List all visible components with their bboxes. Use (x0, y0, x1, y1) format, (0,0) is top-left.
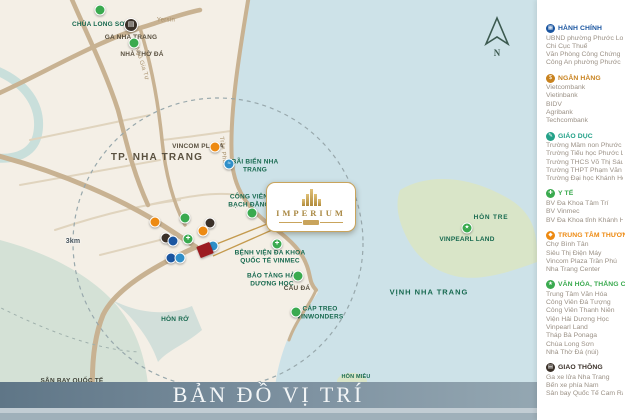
legend-item: Trường Đại học Khánh Hòa (546, 175, 623, 183)
poi-marker-culture (180, 213, 191, 224)
legend-item: Ga xe lửa Nha Trang (546, 374, 623, 382)
legend-category-title: HÀNH CHÍNH (558, 25, 602, 32)
park-marker-icon (247, 208, 258, 219)
legend-item: BV Đa Khoa Tâm Trí (546, 200, 623, 208)
legend-item: Trường THPT Phạm Văn Đồng (546, 167, 623, 175)
legend-item: Techcombank (546, 117, 623, 125)
poi-marker-shopping (150, 217, 161, 228)
hospital-vinmec-icon: ✚ (272, 239, 283, 250)
legend-item: Sân bay Quốc Tế Cam Ranh (546, 390, 623, 398)
map-label-chua-long-son: CHÙA LONG SƠN (72, 21, 130, 29)
legend-item: Vinpearl Land (546, 324, 623, 332)
poi-marker-shopping (198, 226, 209, 237)
logo-ornament (279, 220, 343, 225)
map-canvas: N CHÙA LONG SƠN GA NHA TRANG NHÀ THỜ ĐÁ … (0, 0, 537, 420)
legend-category-title: GIÁO DỤC (558, 133, 593, 140)
legend-category-hanh-chinh: ▦ HÀNH CHÍNH UBND phường Phước Long Chi … (546, 24, 623, 68)
legend-item: Văn Phòng Công Chứng (546, 51, 623, 59)
legend-category-van-hoa-thang-canh: ★ VĂN HÓA, THẮNG CẢNH Trung Tâm Văn Hóa … (546, 280, 623, 357)
poi-marker-bank (168, 236, 179, 247)
train-station-icon: ▤ (124, 18, 138, 32)
legend-category-title: Y TẾ (558, 190, 573, 197)
legend-item: Tháp Bà Ponaga (546, 332, 623, 340)
bank-dollar-icon: $ (546, 74, 555, 83)
legend-category-title: GIAO THÔNG (558, 364, 603, 371)
cable-car-marker-icon (291, 307, 302, 318)
transport-train-icon: ▤ (546, 363, 555, 372)
legend-item: Viện Hải Dương Học (546, 316, 623, 324)
map-label-hon-mieu: HÒN MIỄU (341, 374, 370, 380)
location-map-page: N CHÙA LONG SƠN GA NHA TRANG NHÀ THỜ ĐÁ … (0, 0, 625, 420)
legend-category-title: NGÂN HÀNG (558, 75, 601, 82)
legend-item: Vietcombank (546, 84, 623, 92)
legend-category-y-te: ✚ Y TẾ BV Đa Khoa Tâm Trí BV Vinmec BV Đ… (546, 189, 623, 224)
legend-item: BV Đa Khoa tỉnh Khánh Hòa (546, 217, 623, 225)
legend-item: Chi Cục Thuế (546, 43, 623, 51)
legend-item: UBND phường Phước Long (546, 35, 623, 43)
map-label-cau-da: CẦU ĐÁ (284, 285, 310, 293)
map-label-cap-treo-vinwonders: CÁP TREO VINWONDERS (295, 305, 345, 320)
compass: N (484, 14, 510, 58)
page-title: BẢN ĐỒ VỊ TRÍ (173, 382, 365, 408)
map-label-hon-ro: HÒN RỚ (161, 316, 189, 324)
legend-item: Công Viên Đá Tượng (546, 299, 623, 307)
scale-label-3km: 3km (66, 238, 81, 246)
legend-sidebar: ▦ HÀNH CHÍNH UBND phường Phước Long Chi … (537, 0, 625, 420)
legend-item: Nha Trang Center (546, 266, 623, 274)
map-label-vinh-nha-trang: VỊNH NHA TRANG (390, 289, 469, 298)
street-label-yersin: Yersin (157, 17, 175, 24)
legend-item: Vietinbank (546, 92, 623, 100)
skyline-bars-icon (302, 189, 321, 206)
compass-north-label: N (484, 48, 510, 58)
legend-item: Chùa Long Sơn (546, 341, 623, 349)
map-label-bai-bien-nha-trang: BÃI BIỂN NHA TRANG (229, 158, 281, 173)
legend-category-trung-tam-thuong-mai: ◆ TRUNG TÂM THƯƠNG MẠI Chợ Bình Tân Siêu… (546, 231, 623, 275)
legend-item: Chợ Bình Tân (546, 241, 623, 249)
museum-marker-icon (293, 271, 304, 282)
legend-category-title: VĂN HÓA, THẮNG CẢNH (558, 281, 625, 288)
legend-item: BV Vinmec (546, 208, 623, 216)
legend-item: Trung Tâm Văn Hóa (546, 291, 623, 299)
education-icon: ✎ (546, 132, 555, 141)
legend-item: BIDV (546, 101, 623, 109)
legend-item: Agribank (546, 109, 623, 117)
map-label-hon-tre: HÒN TRE (474, 214, 509, 222)
poi-marker-medical: ✚ (183, 234, 194, 245)
legend-item: Công Viên Thanh Niên (546, 307, 623, 315)
legend-item: Bến xe phía Nam (546, 382, 623, 390)
pagoda-marker-icon (95, 5, 106, 16)
map-label-tp-nha-trang: TP. NHA TRANG (111, 152, 203, 164)
project-logo-card: IMPERIUM (266, 182, 356, 232)
project-name: IMPERIUM (276, 208, 346, 218)
title-bar-strip (0, 413, 537, 420)
government-building-icon: ▦ (546, 24, 555, 33)
poi-marker-education (175, 253, 186, 264)
legend-item: Siêu Thị Điện Máy (546, 250, 623, 258)
legend-category-ngan-hang: $ NGÂN HÀNG Vietcombank Vietinbank BIDV … (546, 74, 623, 126)
cathedral-marker-icon (129, 38, 140, 49)
legend-item: Nhà Thờ Đá (núi) (546, 349, 623, 357)
medical-cross-icon: ✚ (546, 189, 555, 198)
legend-category-giao-thong: ▤ GIAO THÔNG Ga xe lửa Nha Trang Bến xe … (546, 363, 623, 398)
vincom-plaza-marker-icon (210, 142, 221, 153)
map-label-benh-vien-vinmec: BỆNH VIỆN ĐA KHOA QUỐC TẾ VINMEC (234, 249, 306, 264)
legend-item: Công An phường Phước Long (546, 59, 623, 67)
map-label-vinpearl-land: VINPEARL LAND (439, 236, 494, 244)
scenic-star-icon: ★ (546, 280, 555, 289)
legend-item: Vincom Plaza Trần Phú (546, 258, 623, 266)
beach-marker-icon: ≈ (224, 159, 235, 170)
shopping-icon: ◆ (546, 231, 555, 240)
legend-item: Trường THCS Võ Thị Sáu (546, 159, 623, 167)
legend-item: Trường Tiểu học Phước Long 2 (546, 150, 623, 158)
vinpearl-star-icon: ★ (462, 223, 473, 234)
title-bar: BẢN ĐỒ VỊ TRÍ (0, 382, 537, 408)
legend-item: Trường Mầm non Phước Long (546, 142, 623, 150)
legend-category-title: TRUNG TÂM THƯƠNG MẠI (558, 232, 625, 239)
legend-category-giao-duc: ✎ GIÁO DỤC Trường Mầm non Phước Long Trư… (546, 132, 623, 184)
